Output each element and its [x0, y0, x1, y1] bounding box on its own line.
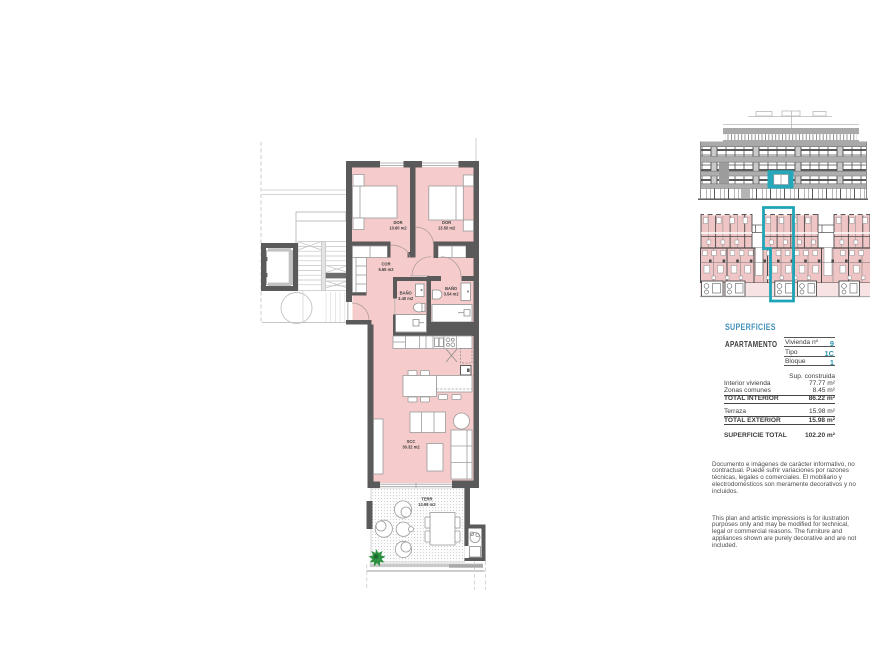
svg-text:3.40 m2: 3.40 m2	[398, 296, 414, 301]
svg-text:13.98 m2: 13.98 m2	[418, 502, 436, 507]
svg-text:COR: COR	[381, 262, 390, 267]
svg-text:TERR: TERR	[421, 497, 432, 502]
svg-text:30.32 m2: 30.32 m2	[402, 445, 420, 450]
svg-text:BAÑO: BAÑO	[445, 286, 458, 291]
svg-text:DOR: DOR	[442, 220, 451, 225]
svg-text:10.60 m2: 10.60 m2	[389, 226, 407, 231]
svg-text:5.65 m2: 5.65 m2	[378, 267, 394, 272]
svg-text:SCC: SCC	[407, 439, 416, 444]
svg-text:BAÑO: BAÑO	[400, 291, 413, 296]
svg-text:DOR: DOR	[393, 220, 402, 225]
svg-text:13.50 m2: 13.50 m2	[438, 226, 456, 231]
svg-text:3.54 m2: 3.54 m2	[444, 292, 460, 297]
